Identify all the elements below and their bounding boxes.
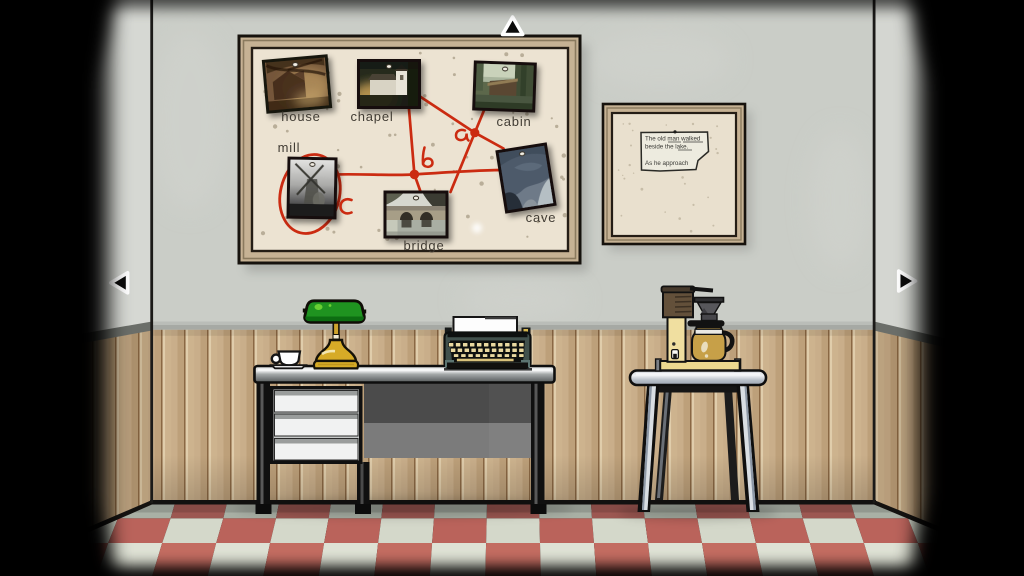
svg-text:mill: mill	[278, 140, 301, 155]
svg-text:cave: cave	[526, 210, 557, 225]
svg-text:chapel: chapel	[350, 109, 393, 124]
svg-text:As he approach: As he approach	[645, 160, 689, 167]
svg-text:cabin: cabin	[496, 114, 531, 129]
svg-text:The old man walked: The old man walked	[645, 136, 701, 143]
svg-text:beside the lake.: beside the lake.	[645, 144, 689, 151]
svg-text:house: house	[281, 109, 320, 124]
svg-text:bridge: bridge	[404, 238, 445, 253]
